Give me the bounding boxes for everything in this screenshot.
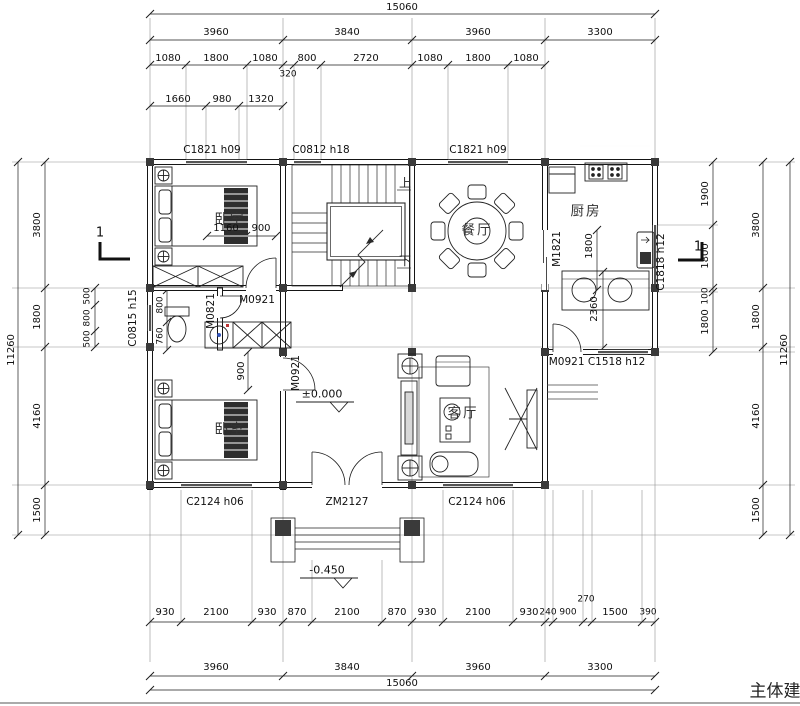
toilet (165, 307, 189, 342)
dim-top-bay: 3960 (465, 28, 490, 38)
drawing-title: 主体建 (750, 684, 800, 701)
door-label-m1821: M1821 (552, 231, 563, 267)
dim-right-inner: 100 (702, 287, 711, 304)
dim-bottom-detail: 390 (639, 609, 656, 618)
dim-top-detail: 2720 (353, 54, 378, 64)
dim-bottom-detail: 2100 (203, 608, 228, 618)
room-label-bedroom-lower: 卧室 (215, 423, 246, 437)
dim-right-chain: 1800 (752, 304, 762, 329)
dim-top-detail: 320 (279, 71, 296, 80)
dim-top-bay: 3960 (203, 28, 228, 38)
dim-top-detail: 1080 (417, 54, 442, 64)
laundry-cabinet (205, 322, 291, 348)
dim-bath: 760 (157, 327, 166, 344)
dim-top-sub: 1660 (165, 95, 190, 105)
dim-kitchen-sink: 2360 (590, 296, 600, 321)
window-label-c1821-a: C1821 h09 (183, 145, 240, 156)
dim-right-inner: 1900 (701, 181, 711, 206)
dim-bottom-detail: 930 (519, 608, 538, 618)
section-number-right: 1 (694, 241, 702, 254)
window-label-c0815: C0815 h15 (128, 289, 139, 346)
dim-right-inner: 1800 (701, 309, 711, 334)
dim-right-chain: 1500 (752, 497, 762, 522)
window-label-c2124-b: C2124 h06 (448, 497, 505, 508)
window-label-c1821-b: C1821 h09 (449, 145, 506, 156)
room-label-living: 客厅 (448, 407, 479, 421)
dim-bottom-detail: 270 (577, 596, 594, 605)
dim-left-inner: 800 (84, 309, 93, 326)
plan-drawing (0, 0, 800, 706)
dim-top-total: 15060 (386, 3, 418, 13)
dim-bottom-detail: 2100 (465, 608, 490, 618)
dim-bath: 800 (157, 296, 166, 313)
dim-bottom-detail: 870 (287, 608, 306, 618)
dim-right-chain: 4160 (752, 403, 762, 428)
dim-left-chain: 1500 (33, 497, 43, 522)
dim-bottom-detail: 930 (155, 608, 174, 618)
stair-up-label: 上 (399, 177, 411, 189)
level-ground: ±0.000 (302, 389, 343, 400)
dim-top-detail: 1800 (203, 54, 228, 64)
dim-bottom-detail: 1500 (602, 608, 627, 618)
dim-left-inner: 500 (84, 287, 93, 304)
dim-left-inner: 500 (84, 330, 93, 347)
dim-bottom-detail: 900 (559, 609, 576, 618)
dim-top-bay: 3300 (587, 28, 612, 38)
wardrobe-upper (153, 266, 243, 287)
dim-bottom-detail: 240 (539, 609, 556, 618)
door-label-m0921-b: M0921 (291, 355, 302, 391)
staircase (292, 165, 411, 287)
dim-top-detail: 1080 (155, 54, 180, 64)
dim-top-bay: 3840 (334, 28, 359, 38)
room-label-dining: 餐厅 (462, 224, 493, 238)
dim-bottom-bay: 3840 (334, 663, 359, 673)
door-label-m0821: M0821 (206, 293, 217, 329)
room-label-kitchen: 厨房 (571, 205, 602, 219)
dim-right-chain: 3800 (752, 212, 762, 237)
level-symbol-porch (300, 578, 358, 588)
dim-right-inner: 1800 (701, 243, 711, 268)
dim-top-detail: 1800 (465, 54, 490, 64)
dim-bottom-detail: 930 (417, 608, 436, 618)
dim-left-total: 11260 (7, 334, 17, 366)
dim-bottom-detail: 870 (387, 608, 406, 618)
kitchen-step (547, 385, 598, 399)
dim-left-chain: 3800 (33, 212, 43, 237)
window-label-c1818: C1818 h12 (656, 233, 667, 290)
hall-screen (505, 388, 537, 450)
window-label-c2124-a: C2124 h06 (186, 497, 243, 508)
room-label-bedroom-upper: 卧室 (215, 213, 246, 227)
dim-kitchen-door: 1800 (585, 233, 595, 258)
kitchen-fixtures (549, 146, 654, 310)
door-label-zm2127: ZM2127 (326, 497, 369, 508)
dim-top-detail: 1080 (513, 54, 538, 64)
dim-top-sub: 980 (212, 95, 231, 105)
dim-right-total: 11260 (780, 334, 790, 366)
dim-bottom-bay: 3960 (203, 663, 228, 673)
dim-bottom-detail: 2100 (334, 608, 359, 618)
dim-top-detail: 1080 (252, 54, 277, 64)
floor-plan-sheet: 15060 3960 3840 3960 3300 1080 1800 1080… (0, 0, 800, 706)
section-number-left: 1 (96, 227, 104, 240)
dim-left-chain: 4160 (33, 403, 43, 428)
dim-bottom-total: 15060 (386, 679, 418, 689)
porch-steps (271, 518, 424, 562)
dim-bottom-bay: 3960 (465, 663, 490, 673)
stair-down-label: 下 (399, 255, 411, 267)
level-porch: -0.450 (309, 565, 344, 576)
dim-bottom-bay: 3300 (587, 663, 612, 673)
dim-bed2-door: 900 (237, 361, 247, 380)
door-label-m0921-a: M0921 (239, 295, 275, 306)
section-mark-left (100, 242, 130, 259)
dim-top-sub: 1320 (248, 95, 273, 105)
dim-bed1-door: 900 (251, 224, 270, 234)
doors (217, 230, 584, 489)
level-symbol-ground (296, 402, 354, 412)
dim-top-detail: 800 (297, 54, 316, 64)
door-window-label-m0921-c1518: M0921 C1518 h12 (549, 357, 646, 368)
dim-left-chain: 1800 (33, 304, 43, 329)
window-label-c0812: C0812 h18 (292, 145, 349, 156)
dim-bottom-detail: 930 (257, 608, 276, 618)
